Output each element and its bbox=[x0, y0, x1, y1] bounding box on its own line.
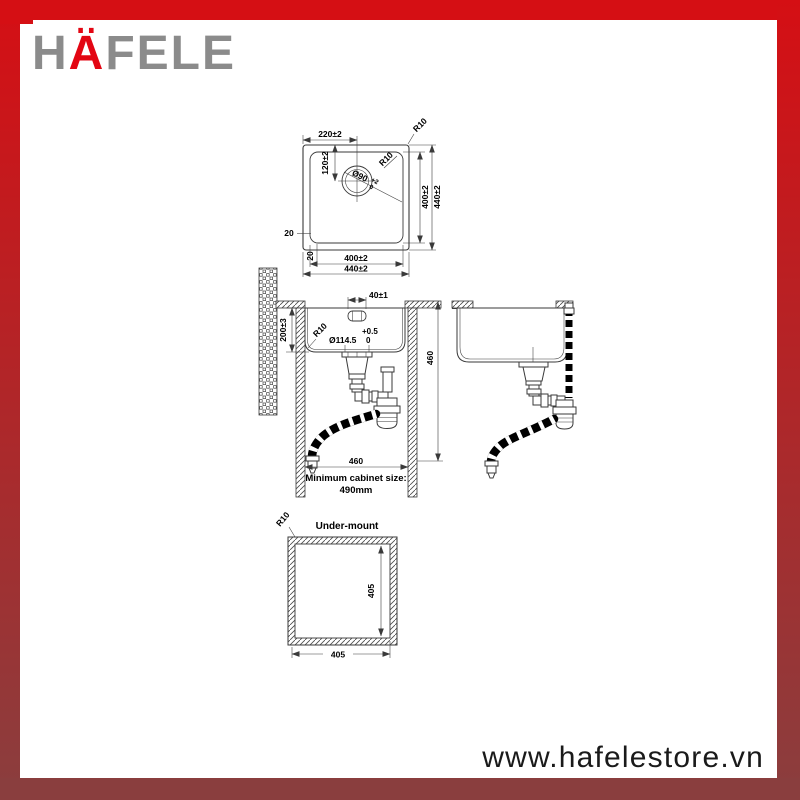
side-counter-left bbox=[452, 301, 473, 308]
cabinet-wall-right bbox=[408, 308, 417, 497]
top-view: 220±2 R10 R10 120±2 Ø90 +2 0 400±2 440±2… bbox=[284, 116, 442, 277]
waste-assembly bbox=[306, 352, 400, 473]
logo-letters-rest: FELE bbox=[105, 27, 236, 80]
side-view bbox=[452, 301, 576, 478]
section-view: 40±1 200±3 R10 +0.5 Ø114.5 0 bbox=[259, 268, 443, 497]
waste-tol-lower: 0 bbox=[366, 336, 371, 345]
rim-left-label: 20 bbox=[284, 228, 294, 238]
logo-letter-a-umlaut: Ä bbox=[69, 27, 106, 80]
trap-top bbox=[377, 398, 397, 406]
dim-405-h-label: 405 bbox=[331, 650, 345, 660]
dim-440-bottom-label: 440±2 bbox=[344, 264, 368, 274]
drain-hose bbox=[312, 414, 376, 457]
hafele-logo: HÄFELE bbox=[32, 30, 236, 78]
dim-440-right-label: 440±2 bbox=[432, 185, 442, 209]
cabinet-note-line1: Minimum cabinet size: bbox=[305, 473, 406, 484]
frame-border-bottom bbox=[0, 778, 800, 800]
dim-400-bottom-label: 400±2 bbox=[344, 253, 368, 263]
side-trap-nut bbox=[553, 407, 576, 414]
side-trap-top bbox=[556, 400, 573, 407]
drain-dia-label-group: Ø90 +2 0 bbox=[349, 168, 380, 193]
dim-40-label: 40±1 bbox=[369, 290, 388, 300]
dim-405-v-label: 405 bbox=[366, 584, 376, 598]
waste-tol-upper: +0.5 bbox=[362, 327, 378, 336]
wall-section bbox=[259, 268, 277, 415]
radius-outer-label: R10 bbox=[411, 116, 429, 134]
website-url: www.hafelestore.vn bbox=[482, 741, 764, 775]
cabinet-note-line2: 490mm bbox=[340, 485, 373, 496]
countertop-left bbox=[276, 301, 305, 308]
frame-border-left bbox=[0, 0, 20, 800]
side-drain-hose bbox=[491, 419, 554, 462]
waste-dia-label: Ø114.5 bbox=[329, 335, 357, 345]
logo-letter-h: H bbox=[32, 27, 69, 80]
dim-400-right-label: 400±2 bbox=[420, 185, 430, 209]
frame-border-right bbox=[777, 0, 800, 800]
countertop-right bbox=[405, 301, 441, 308]
cabinet-wall-left bbox=[296, 308, 305, 497]
frame-border-top bbox=[0, 0, 800, 20]
undermount-title: Under-mount bbox=[316, 521, 379, 532]
side-bowl-outline bbox=[457, 308, 567, 362]
side-trap-body bbox=[556, 414, 573, 429]
under-mount-view: R10 Under-mount 405 405 bbox=[274, 510, 397, 660]
technical-drawing: 220±2 R10 R10 120±2 Ø90 +2 0 400±2 440±2… bbox=[0, 0, 800, 800]
dim-120-label: 120±2 bbox=[320, 151, 330, 175]
dim-200-label: 200±3 bbox=[278, 318, 288, 342]
undermount-radius-label: R10 bbox=[274, 510, 292, 529]
dim-460-h-label: 460 bbox=[349, 456, 363, 466]
frame-corner-step bbox=[0, 0, 33, 24]
dim-220-label: 220±2 bbox=[318, 129, 342, 139]
dim-460-v-label: 460 bbox=[425, 351, 435, 365]
